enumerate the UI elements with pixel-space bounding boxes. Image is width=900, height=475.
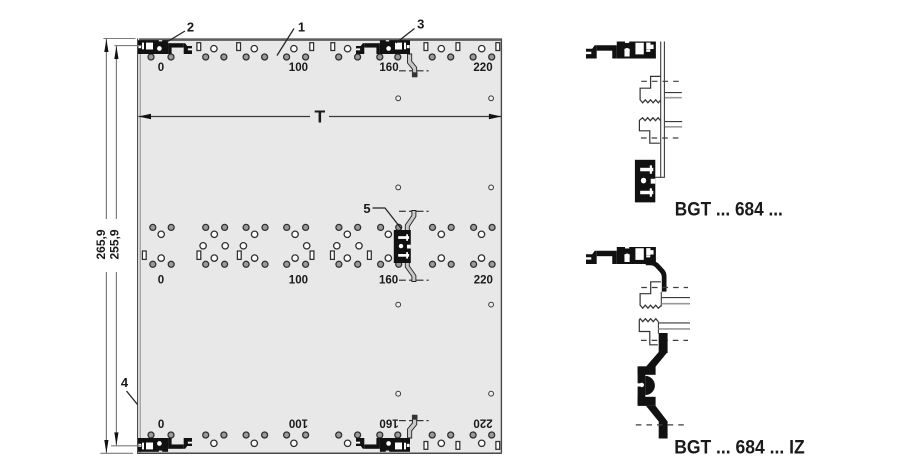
svg-text:100: 100 bbox=[289, 275, 308, 287]
svg-text:2: 2 bbox=[187, 20, 194, 35]
svg-text:265,9: 265,9 bbox=[94, 229, 108, 259]
svg-text:0: 0 bbox=[158, 275, 164, 287]
svg-text:3: 3 bbox=[417, 17, 424, 32]
svg-text:255,9: 255,9 bbox=[108, 229, 122, 259]
svg-text:0: 0 bbox=[158, 417, 164, 429]
svg-text:220: 220 bbox=[473, 417, 492, 429]
svg-text:160: 160 bbox=[379, 62, 398, 74]
svg-text:T: T bbox=[314, 107, 325, 127]
svg-text:220: 220 bbox=[474, 275, 493, 287]
svg-text:BGT ... 684 ... IZ: BGT ... 684 ... IZ bbox=[674, 437, 805, 459]
svg-text:220: 220 bbox=[473, 62, 492, 74]
svg-text:1: 1 bbox=[298, 20, 305, 35]
svg-text:0: 0 bbox=[158, 62, 164, 74]
svg-text:4: 4 bbox=[121, 375, 129, 390]
svg-text:100: 100 bbox=[289, 417, 308, 429]
svg-text:BGT ... 684 ...: BGT ... 684 ... bbox=[675, 199, 783, 221]
svg-text:160: 160 bbox=[379, 417, 398, 429]
svg-text:5: 5 bbox=[363, 201, 370, 216]
svg-text:160: 160 bbox=[379, 275, 398, 287]
svg-text:100: 100 bbox=[289, 62, 308, 74]
